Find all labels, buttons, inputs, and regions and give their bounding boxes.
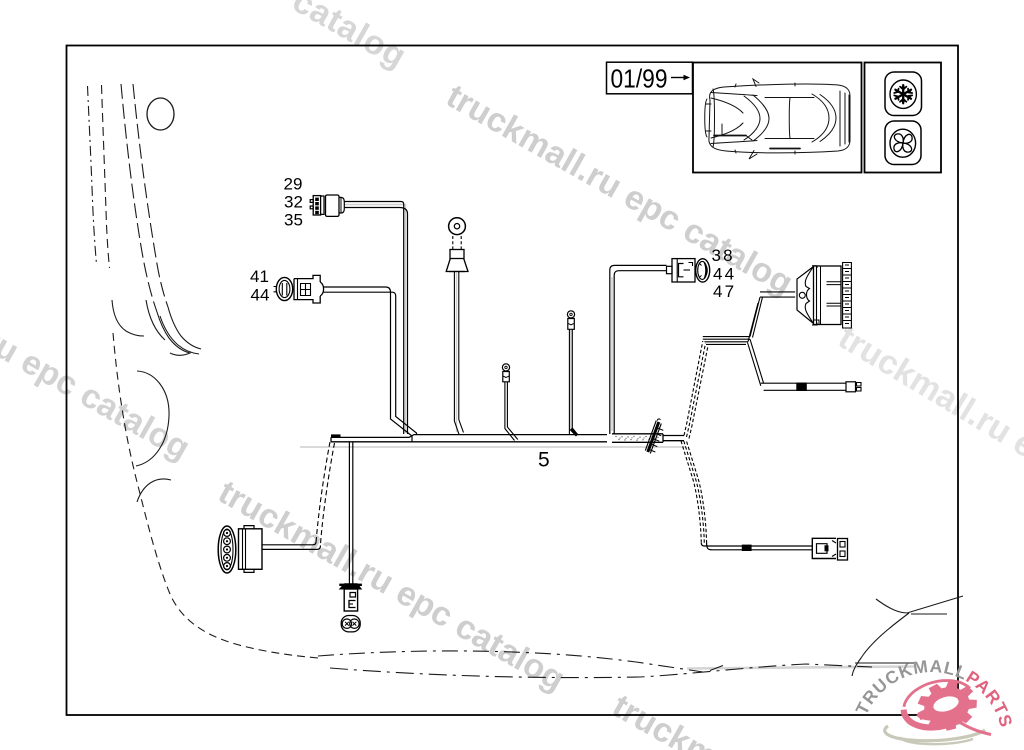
svg-text:44: 44 [713,265,736,284]
svg-text:01/99: 01/99 [611,66,668,94]
svg-text:38: 38 [712,246,735,265]
svg-text:29: 29 [284,175,303,194]
svg-text:32: 32 [284,193,303,212]
svg-text:44: 44 [251,286,270,305]
svg-text:47: 47 [713,282,736,301]
svg-text:5: 5 [538,449,550,472]
svg-text:41: 41 [250,267,269,286]
svg-text:35: 35 [284,211,303,230]
